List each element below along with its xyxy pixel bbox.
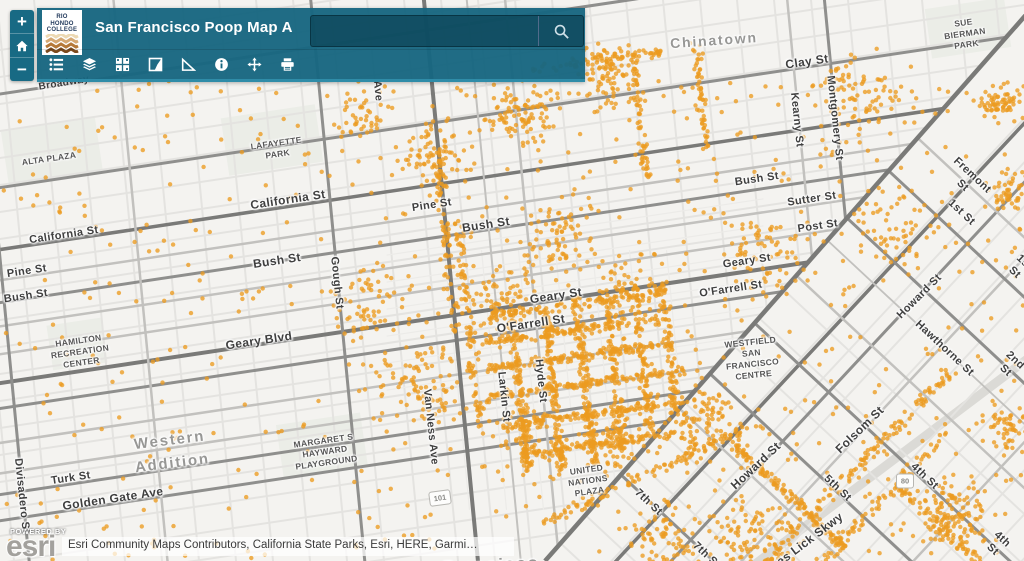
directions-icon <box>247 57 262 72</box>
home-button[interactable] <box>10 34 34 58</box>
zoom-in-button[interactable]: + <box>10 10 34 34</box>
highway-shield-101: 101 <box>428 489 452 507</box>
legend-icon <box>49 57 64 72</box>
zoom-out-button[interactable]: − <box>10 58 34 81</box>
measure-icon <box>181 57 196 72</box>
map-attribution: Esri Community Maps Contributors, Califo… <box>62 537 514 556</box>
highway-shield-80: 80 <box>896 474 914 489</box>
print-icon <box>280 57 295 72</box>
home-icon <box>15 39 29 53</box>
search-button[interactable] <box>538 16 583 46</box>
toolbar-swipe-button[interactable] <box>144 54 166 76</box>
toolbar-basemap-gallery-button[interactable] <box>111 54 133 76</box>
toolbar-directions-button[interactable] <box>243 54 265 76</box>
logo-line: COLLEGE <box>47 27 77 34</box>
poi-label: UNITED NATIONS PLAZA <box>566 462 610 500</box>
toolbar-layers-button[interactable] <box>78 54 100 76</box>
area-label: Western Addition <box>131 424 211 479</box>
toolbar-legend-button[interactable] <box>45 54 67 76</box>
search-input[interactable] <box>311 16 538 46</box>
app-header: RIO HONDO COLLEGE San Francisco Poop Map… <box>37 8 585 82</box>
logo-line: RIO <box>47 14 77 21</box>
toolbar-measure-button[interactable] <box>177 54 199 76</box>
basemap-gallery-icon <box>115 57 130 72</box>
swipe-icon <box>148 57 163 72</box>
layers-icon <box>82 57 97 72</box>
search-icon <box>553 23 570 40</box>
poi-label: WESTFIELD SAN FRANCISCO CENTRE <box>723 334 781 384</box>
map-toolbar <box>37 49 585 79</box>
toolbar-print-button[interactable] <box>276 54 298 76</box>
zoom-controls: + − <box>10 10 34 81</box>
street-label: Ave <box>369 80 385 102</box>
search-box <box>310 15 584 47</box>
page-title: San Francisco Poop Map A <box>95 19 293 36</box>
toolbar-about-button[interactable] <box>210 54 232 76</box>
esri-logo: esri <box>6 530 55 561</box>
about-icon <box>214 57 229 72</box>
logo-line: HONDO <box>47 21 77 28</box>
map-app: California StPine StBush StCalifornia St… <box>0 0 1024 561</box>
